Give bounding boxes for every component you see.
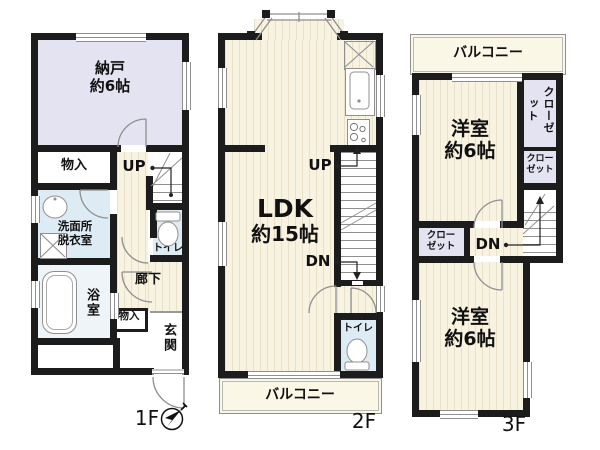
wall bbox=[412, 256, 474, 263]
wall bbox=[113, 338, 120, 375]
wall bbox=[31, 258, 117, 265]
wall bbox=[330, 145, 383, 152]
floor-plan-canvas: 納戸 約6帖 物入 UP 洗面所 脱衣室 トイレ 浴室 廊下 物入 玄関 1F bbox=[0, 0, 600, 450]
wall bbox=[146, 145, 189, 152]
window bbox=[218, 222, 227, 266]
window bbox=[412, 95, 421, 135]
closet-label-left: クロー ゼット bbox=[418, 230, 464, 252]
entrance-threshold bbox=[152, 369, 184, 375]
stairs-3f-winder bbox=[523, 190, 556, 212]
room-label-toilet-1f: トイレ bbox=[150, 243, 186, 255]
room-label-washroom: 洗面所 脱衣室 bbox=[44, 220, 106, 247]
room-label-monoire-upper: 物入 bbox=[46, 158, 102, 173]
window bbox=[31, 196, 40, 223]
kitchen-counter bbox=[345, 68, 375, 116]
room-label-toilet-2f: トイレ bbox=[340, 323, 376, 335]
wall bbox=[31, 145, 121, 152]
wall bbox=[150, 210, 157, 238]
window bbox=[376, 286, 385, 312]
stairs-2f bbox=[341, 152, 376, 280]
closet-label-right-lower: クロー ゼット bbox=[520, 154, 560, 175]
bathtub bbox=[42, 271, 77, 334]
wall bbox=[500, 221, 524, 228]
wall bbox=[500, 256, 523, 263]
wall bbox=[517, 183, 563, 190]
window bbox=[376, 75, 385, 117]
stairs-up-label: UP bbox=[303, 157, 337, 175]
closet-label-right-upper: クローゼット bbox=[524, 86, 556, 134]
wall bbox=[218, 145, 265, 152]
window bbox=[412, 300, 421, 362]
wall bbox=[110, 258, 117, 294]
balcony-label-2f: バルコニー bbox=[245, 387, 355, 404]
room-label-bedroom2: 洋室 約6帖 bbox=[432, 306, 508, 351]
entrance-step-line bbox=[150, 311, 183, 313]
room-label-bedroom1: 洋室 約6帖 bbox=[432, 118, 508, 163]
window bbox=[523, 362, 532, 398]
wall bbox=[31, 338, 117, 345]
refrigerator-space bbox=[344, 41, 376, 70]
floor-label-3f: 3F bbox=[498, 413, 530, 437]
stairs-dn-label: DN bbox=[471, 236, 505, 254]
balcony-label-3f: バルコニー bbox=[438, 45, 538, 62]
window bbox=[31, 281, 40, 308]
balcony-sliding-window bbox=[452, 73, 522, 82]
room-label-rouka: 廊下 bbox=[128, 272, 168, 287]
room-label-ldk: LDK bbox=[235, 194, 335, 224]
stove bbox=[347, 119, 370, 148]
room-label-nando: 納戸 約6帖 bbox=[58, 60, 162, 95]
window bbox=[182, 62, 191, 110]
room-label-genkan: 玄関 bbox=[159, 318, 176, 358]
room-label-bath: 浴室 bbox=[82, 281, 99, 325]
wall bbox=[334, 313, 383, 320]
wall bbox=[31, 368, 154, 375]
bay-window-floor bbox=[254, 19, 344, 40]
window bbox=[218, 68, 227, 108]
stair-opening bbox=[352, 281, 363, 285]
floor-label-2f: 2F bbox=[348, 410, 380, 434]
wall bbox=[524, 147, 556, 151]
stairs-dn-label: DN bbox=[301, 253, 335, 271]
room-label-monoire-lower: 物入 bbox=[113, 310, 145, 322]
stairs-up-label: UP bbox=[117, 158, 151, 176]
north-compass-icon bbox=[162, 403, 188, 430]
stairs-3f bbox=[523, 212, 556, 256]
window bbox=[76, 33, 146, 42]
wall bbox=[146, 203, 189, 210]
room-label-ldk-size: 約15帖 bbox=[228, 223, 342, 247]
bathtub-inner bbox=[46, 275, 73, 330]
floor-label-1f: 1F bbox=[131, 407, 163, 431]
wall bbox=[31, 183, 117, 190]
wall bbox=[183, 368, 189, 375]
window bbox=[440, 410, 478, 419]
wall bbox=[150, 255, 189, 262]
